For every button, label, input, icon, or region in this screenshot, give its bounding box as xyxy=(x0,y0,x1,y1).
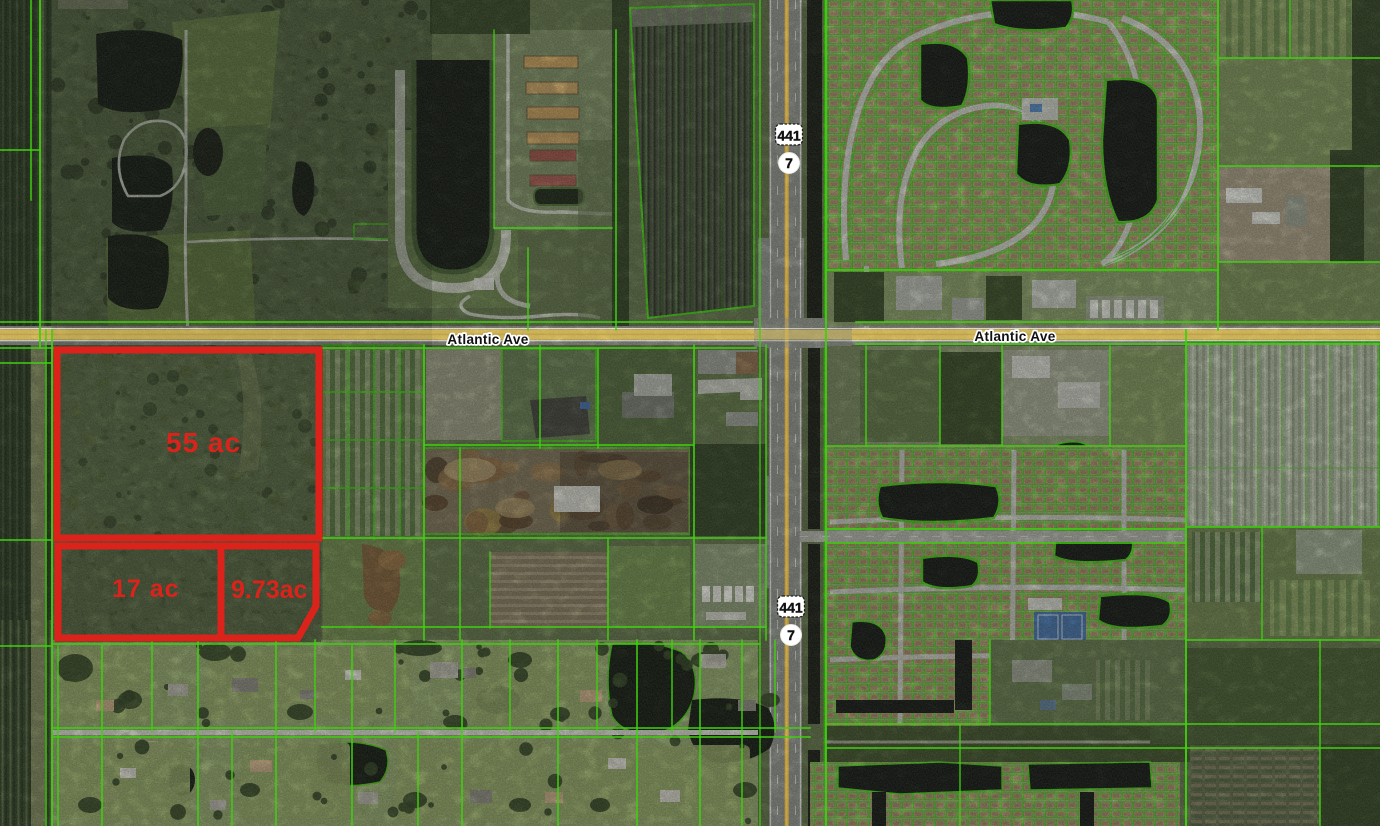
svg-text:Atlantic Ave: Atlantic Ave xyxy=(974,329,1055,344)
svg-text:17 ac: 17 ac xyxy=(112,575,180,603)
svg-text:55 ac: 55 ac xyxy=(166,427,241,458)
svg-text:Atlantic Ave: Atlantic Ave xyxy=(447,332,528,347)
svg-text:441: 441 xyxy=(777,128,801,144)
svg-text:9.73ac: 9.73ac xyxy=(231,576,308,604)
svg-text:441: 441 xyxy=(779,600,803,616)
svg-text:7: 7 xyxy=(787,627,795,643)
svg-text:7: 7 xyxy=(785,155,793,171)
